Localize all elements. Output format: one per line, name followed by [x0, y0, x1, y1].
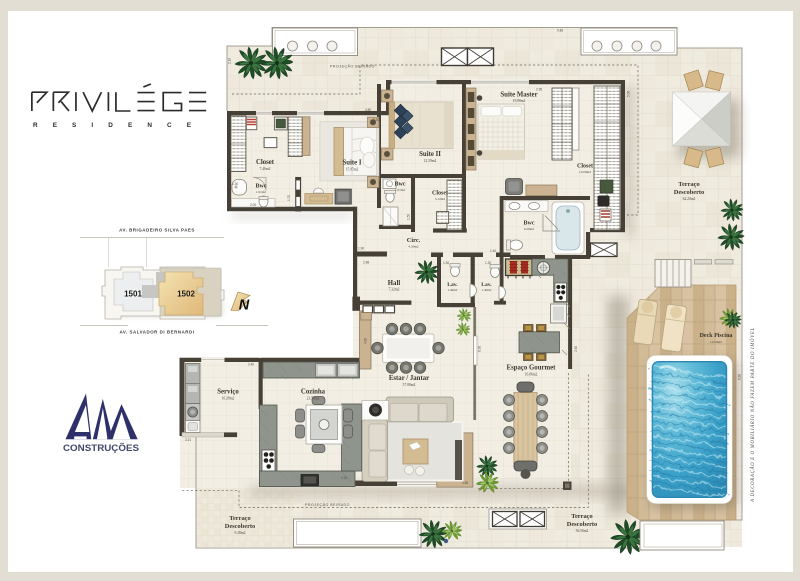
svg-text:Espaço Gourmet: Espaço Gourmet	[507, 365, 557, 372]
svg-text:CONSTRUÇÕES: CONSTRUÇÕES	[63, 443, 140, 454]
svg-text:5.06: 5.06	[627, 91, 631, 97]
svg-text:PROJEÇÃO BEIRADO: PROJEÇÃO BEIRADO	[330, 64, 375, 69]
svg-text:Bwc: Bwc	[524, 221, 535, 227]
svg-text:3.12m2: 3.12m2	[435, 197, 446, 201]
svg-text:6.60: 6.60	[738, 374, 742, 380]
svg-text:Suite Master: Suite Master	[500, 92, 537, 99]
svg-text:2.98: 2.98	[363, 261, 369, 265]
svg-text:Hall: Hall	[388, 280, 401, 287]
svg-text:1.40m2: 1.40m2	[482, 288, 492, 292]
svg-text:Descoberto: Descoberto	[674, 189, 705, 196]
svg-text:Deck Piscina: Deck Piscina	[700, 333, 733, 339]
svg-text:56.56m2: 56.56m2	[576, 529, 589, 533]
svg-text:Estar / Jantar: Estar / Jantar	[389, 375, 429, 382]
svg-text:Circ.: Circ.	[407, 237, 421, 244]
svg-text:3.21: 3.21	[185, 438, 191, 442]
svg-text:AV. SALVADOR DI BERNARDI: AV. SALVADOR DI BERNARDI	[120, 330, 195, 335]
svg-text:12.09m2: 12.09m2	[579, 170, 591, 174]
svg-text:Terraço: Terraço	[229, 515, 250, 522]
svg-text:4.26: 4.26	[341, 476, 347, 480]
svg-text:14.50m2: 14.50m2	[710, 340, 722, 344]
svg-text:RESIDENCE: RESIDENCE	[33, 122, 203, 129]
svg-text:Closet: Closet	[577, 164, 593, 170]
svg-text:Closet: Closet	[432, 191, 448, 197]
svg-text:Serviço: Serviço	[217, 389, 239, 396]
svg-text:2.10: 2.10	[228, 58, 232, 64]
svg-text:1501: 1501	[124, 290, 142, 299]
svg-text:1.50: 1.50	[407, 214, 411, 220]
svg-text:Suite I: Suite I	[342, 160, 361, 167]
svg-text:AV. BRIGADEIRO SILVA PAES: AV. BRIGADEIRO SILVA PAES	[119, 228, 195, 233]
svg-text:6.29m2: 6.29m2	[524, 227, 535, 231]
svg-text:12.39m2: 12.39m2	[424, 159, 437, 163]
svg-text:2.40: 2.40	[248, 363, 254, 367]
svg-text:3.50: 3.50	[373, 118, 379, 122]
svg-text:2.50: 2.50	[574, 346, 578, 352]
svg-text:1.40m2: 1.40m2	[448, 288, 458, 292]
svg-text:1.40: 1.40	[490, 249, 496, 253]
svg-text:7.32m2: 7.32m2	[389, 288, 400, 292]
svg-text:62.20m2: 62.20m2	[683, 197, 696, 201]
svg-text:Terraço: Terraço	[571, 513, 592, 520]
svg-text:Descoberto: Descoberto	[567, 521, 598, 528]
svg-text:Bwc: Bwc	[256, 184, 267, 190]
svg-text:9.86: 9.86	[557, 29, 563, 33]
svg-text:1.70: 1.70	[287, 195, 291, 201]
svg-text:15.95m2: 15.95m2	[346, 168, 359, 172]
svg-text:10.28m2: 10.28m2	[222, 397, 235, 401]
svg-text:1.30: 1.30	[485, 261, 491, 265]
svg-text:4.80: 4.80	[365, 108, 371, 112]
svg-text:1.91m2: 1.91m2	[395, 188, 406, 192]
svg-text:8.30: 8.30	[478, 346, 482, 352]
svg-text:Terraço: Terraço	[678, 181, 699, 188]
svg-text:16.06m2: 16.06m2	[525, 373, 538, 377]
svg-text:1.30: 1.30	[232, 182, 238, 186]
svg-text:Cozinha: Cozinha	[301, 389, 326, 396]
svg-text:Bwc: Bwc	[395, 182, 406, 188]
svg-text:1.90: 1.90	[358, 247, 364, 251]
svg-text:1.30: 1.30	[443, 261, 449, 265]
svg-text:Closet: Closet	[256, 159, 275, 166]
svg-text:4.30m2: 4.30m2	[408, 244, 419, 248]
svg-text:19.88m2: 19.88m2	[513, 99, 526, 103]
svg-text:2.00: 2.00	[250, 203, 256, 207]
svg-text:A DECORAÇÃO E O MOBILIÁRIO: A DECORAÇÃO E O MOBILIÁRIO NÃO FAZEM PAR…	[750, 327, 756, 503]
svg-text:Descoberto: Descoberto	[225, 523, 256, 530]
svg-text:4.86: 4.86	[462, 481, 468, 485]
svg-text:N: N	[239, 298, 250, 314]
svg-text:9.28m2: 9.28m2	[235, 531, 246, 535]
svg-text:4.60: 4.60	[364, 338, 368, 344]
svg-text:Suite II: Suite II	[419, 151, 441, 158]
svg-text:7.46m2: 7.46m2	[260, 167, 271, 171]
svg-text:PROJEÇÃO BEIRADO: PROJEÇÃO BEIRADO	[305, 502, 350, 507]
svg-text:23.56m2: 23.56m2	[307, 397, 320, 401]
svg-text:1.91m2: 1.91m2	[256, 190, 267, 194]
svg-text:2.95: 2.95	[536, 88, 542, 92]
svg-text:1502: 1502	[177, 290, 195, 299]
svg-text:57.88m2: 57.88m2	[403, 383, 416, 387]
